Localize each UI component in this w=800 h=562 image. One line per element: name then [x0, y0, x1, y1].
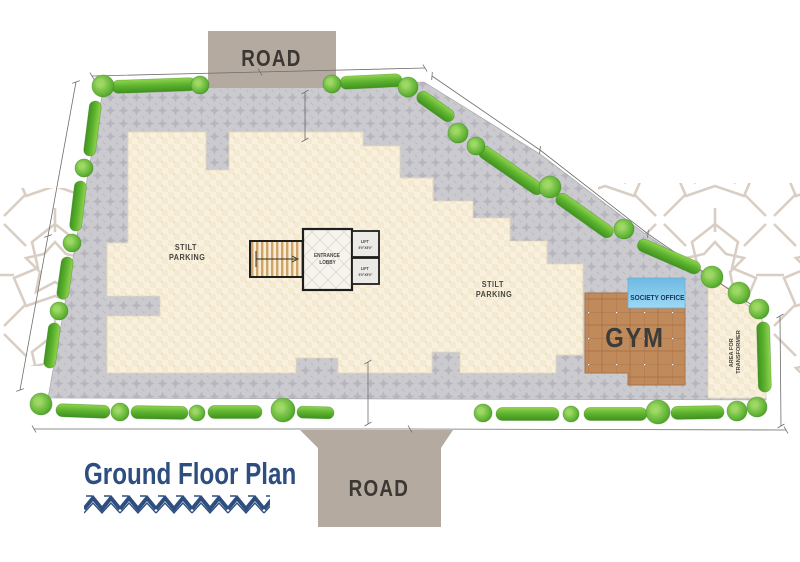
- tree-highlight: [477, 407, 485, 415]
- transformer-label: AREA FOR TRANSFORMER: [729, 330, 742, 374]
- hedge-segment: [297, 406, 334, 419]
- tree-highlight: [750, 400, 759, 409]
- tree-highlight: [66, 237, 74, 245]
- society-office-label: SOCIETY OFFICE: [630, 295, 684, 302]
- tree-highlight: [95, 78, 105, 88]
- tree-highlight: [617, 222, 626, 231]
- hedge-segment: [208, 406, 262, 419]
- hedge-segment: [671, 406, 724, 420]
- tree-highlight: [326, 78, 334, 86]
- road-bottom-label: ROAD: [349, 476, 409, 501]
- tree-highlight: [470, 140, 478, 148]
- tree-highlight: [542, 179, 552, 189]
- tree-highlight: [451, 126, 460, 135]
- tree-highlight: [191, 407, 198, 414]
- tree-highlight: [401, 80, 410, 89]
- hedge-segment: [340, 74, 403, 90]
- hedge-segment: [131, 406, 188, 420]
- title-decoration: [84, 495, 270, 515]
- dimension-tick: [540, 146, 541, 154]
- tree-highlight: [33, 396, 43, 406]
- tree-highlight: [275, 402, 286, 413]
- title-block: Ground Floor Plan: [84, 456, 304, 515]
- hedge-segment: [56, 404, 110, 419]
- dimension-tick: [432, 72, 433, 80]
- society-office-area: [628, 278, 685, 308]
- hedge-segment: [112, 78, 196, 94]
- ground-floor-plan-canvas: ROAD ROAD STILT PARKING STILT PARKING EN…: [0, 0, 800, 562]
- tree-highlight: [114, 406, 122, 414]
- tree-highlight: [704, 269, 714, 279]
- hedge-segment: [496, 408, 559, 421]
- tree-highlight: [650, 404, 661, 415]
- tree-highlight: [194, 79, 202, 87]
- tree-highlight: [752, 302, 761, 311]
- tree-highlight: [53, 305, 61, 313]
- entrance-lobby-room: [303, 229, 352, 290]
- road-top-label: ROAD: [241, 46, 301, 71]
- tree-highlight: [565, 408, 572, 415]
- hedge-segment: [584, 408, 647, 421]
- tree-highlight: [78, 162, 86, 170]
- tree-highlight: [731, 285, 741, 295]
- hedge-segment: [757, 322, 772, 392]
- gym-label: GYM: [605, 321, 664, 353]
- tree-highlight: [730, 404, 739, 413]
- page-title: Ground Floor Plan: [84, 456, 256, 492]
